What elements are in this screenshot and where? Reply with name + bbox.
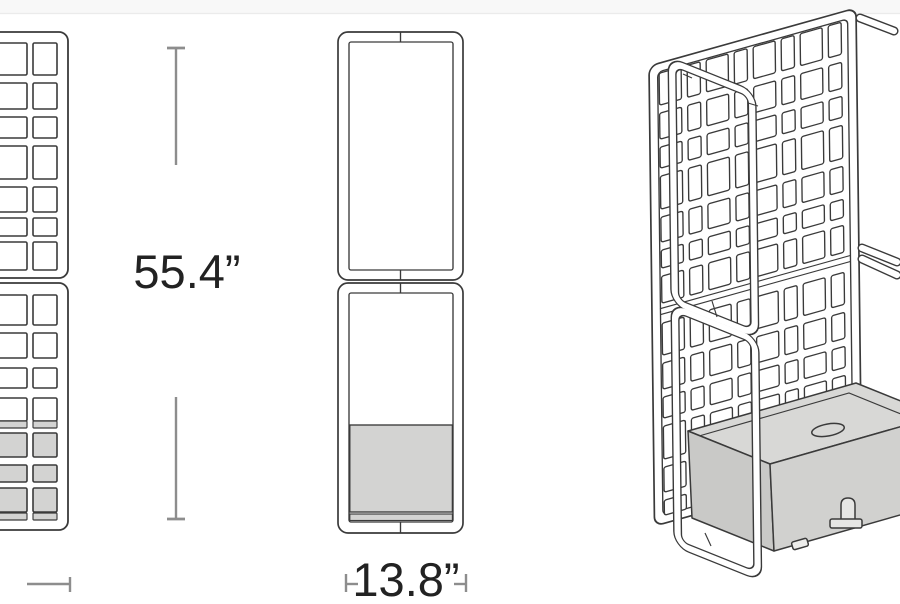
grid-cell — [708, 198, 730, 229]
side-view-upper-frame-outer — [338, 32, 463, 280]
grid-cell — [0, 333, 27, 358]
planter-clip-tab — [841, 498, 855, 520]
grid-cell — [736, 226, 749, 248]
grid-cell — [801, 131, 823, 170]
front-view — [0, 32, 68, 530]
grid-cell — [688, 102, 701, 132]
grid-cell — [830, 199, 843, 221]
grid-cell — [33, 368, 57, 388]
grid-cell — [33, 117, 57, 138]
grid-cell — [0, 83, 27, 109]
grid-cell — [0, 187, 27, 212]
grid-cell — [691, 386, 704, 411]
grid-cell — [802, 172, 824, 203]
grid-cell — [832, 312, 845, 342]
grid-cell — [782, 75, 795, 105]
grid-cell — [707, 157, 729, 196]
grid-cell — [782, 138, 795, 175]
grid-cell — [0, 242, 27, 270]
grid-cell — [690, 265, 703, 296]
grid-cell — [33, 421, 57, 428]
grid-cell — [0, 398, 27, 421]
grid-cell — [756, 244, 778, 277]
grid-cell — [33, 218, 57, 236]
grid-cell — [783, 212, 796, 234]
joint-tick-bottom — [705, 533, 711, 546]
grid-cell — [803, 231, 825, 264]
front-width-dimension — [27, 577, 70, 592]
grid-cell — [0, 146, 27, 179]
grid-cell — [755, 185, 777, 216]
grid-cell — [709, 257, 731, 290]
grid-cell — [753, 41, 775, 79]
planter-clip-base — [830, 519, 862, 528]
grid-cell — [33, 187, 57, 212]
side-view-planter-profile — [350, 425, 453, 512]
grid-cell — [800, 28, 822, 66]
grid-cell — [828, 22, 841, 58]
width-dimension: 13.8” — [346, 553, 466, 604]
grid-cell — [707, 94, 729, 126]
diagram-canvas: 55.4” 13.8” — [0, 0, 900, 604]
side-view — [338, 32, 463, 533]
grid-cell — [829, 96, 842, 121]
grid-cell — [831, 225, 844, 256]
grid-cell — [0, 433, 27, 457]
grid-cell — [0, 295, 27, 325]
grid-cell — [801, 68, 823, 100]
grid-cell — [734, 49, 747, 85]
top-artifact-band — [0, 0, 900, 13]
grid-cell — [33, 146, 57, 179]
grid-cell — [754, 144, 776, 183]
grid-cell — [0, 513, 27, 520]
grid-cell — [33, 433, 57, 457]
iso-connector-arms — [860, 18, 897, 275]
grid-cell — [688, 136, 701, 161]
dimension-drawing: 55.4” 13.8” — [0, 0, 900, 604]
grid-cell — [756, 291, 778, 329]
grid-cell — [783, 179, 796, 208]
grid-cell — [736, 193, 749, 222]
grid-cell — [33, 333, 57, 358]
grid-cell — [33, 488, 57, 512]
grid-cell — [691, 352, 704, 382]
grid-cell — [33, 465, 57, 482]
grid-cell — [754, 81, 776, 113]
grid-cell — [33, 398, 57, 421]
width-dimension-label: 13.8” — [352, 553, 459, 604]
grid-cell — [0, 117, 27, 138]
grid-cell — [33, 83, 57, 109]
grid-cell — [735, 123, 748, 148]
grid-cell — [689, 239, 702, 261]
height-dimension-label: 55.4” — [133, 245, 240, 298]
side-view-planter-base-strip — [350, 514, 453, 521]
grid-cell — [33, 242, 57, 270]
grid-cell — [738, 373, 751, 398]
grid-cell — [803, 278, 825, 316]
grid-cell — [0, 465, 27, 482]
grid-cell — [785, 359, 798, 384]
grid-cell — [804, 318, 826, 350]
grid-cell — [757, 331, 779, 363]
grid-cell — [0, 368, 27, 388]
grid-cell — [735, 152, 748, 189]
grid-cell — [784, 238, 797, 269]
grid-cell — [0, 218, 27, 236]
grid-cell — [0, 488, 27, 512]
grid-cell — [784, 285, 797, 321]
grid-cell — [710, 344, 732, 376]
grid-cell — [785, 325, 798, 355]
grid-cell — [0, 43, 27, 75]
grid-cell — [829, 125, 842, 162]
grid-cell — [0, 421, 27, 428]
grid-cell — [688, 165, 701, 202]
grid-cell — [782, 109, 795, 134]
grid-cell — [689, 206, 702, 235]
grid-cell — [737, 252, 750, 283]
grid-cell — [831, 272, 844, 308]
grid-cell — [33, 513, 57, 520]
grid-cell — [781, 35, 794, 71]
grid-cell — [829, 62, 842, 92]
grid-cell — [33, 295, 57, 325]
grid-cell — [33, 43, 57, 75]
height-dimension: 55.4” — [133, 48, 240, 519]
grid-cell — [830, 166, 843, 195]
isometric-view — [649, 8, 900, 576]
grid-cell — [832, 346, 845, 371]
